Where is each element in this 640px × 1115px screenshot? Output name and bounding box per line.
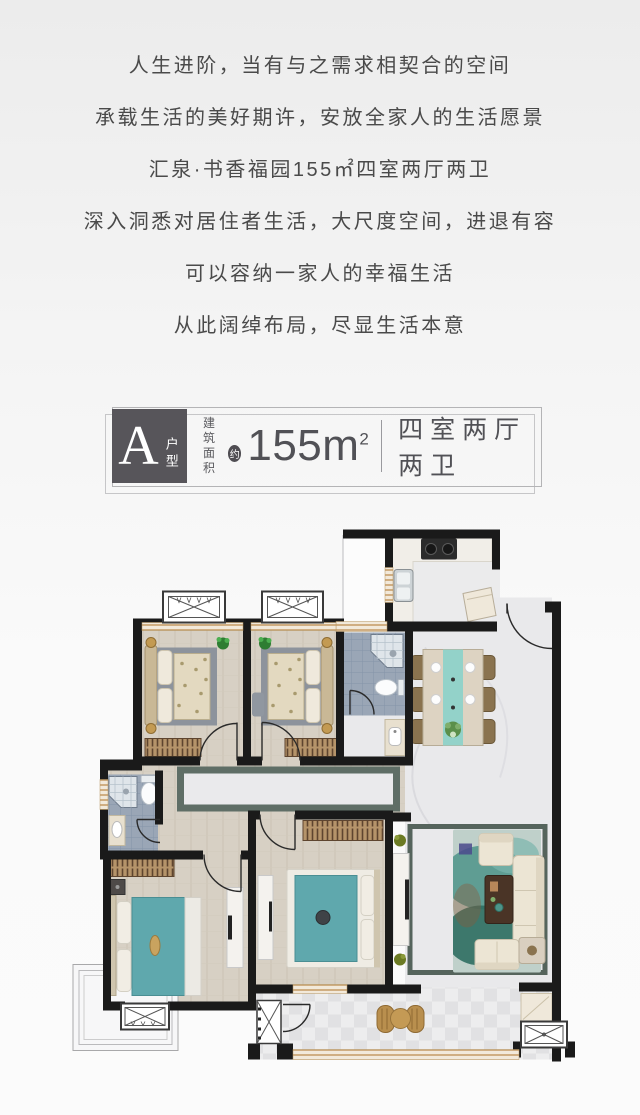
wall xyxy=(168,1002,248,1011)
pillow xyxy=(158,689,172,723)
entry-floor xyxy=(492,598,552,628)
wall xyxy=(385,813,411,822)
sink-basin xyxy=(397,573,410,585)
wall xyxy=(387,622,497,632)
wall xyxy=(133,619,142,766)
wall xyxy=(385,603,393,624)
area-label-bottom: 面积 xyxy=(203,446,223,476)
room-layout-text: 四室两厅两卫 xyxy=(398,410,547,482)
badge-divider xyxy=(381,420,382,472)
badge-content: 建筑 面积 约 155m2 四室两厅两卫 xyxy=(203,407,547,485)
wall xyxy=(385,536,393,568)
area-superscript: 2 xyxy=(359,429,369,448)
toilet xyxy=(375,680,397,696)
window-sill xyxy=(336,622,387,632)
plate xyxy=(465,695,475,705)
table-decor xyxy=(451,678,455,682)
loveseat-back xyxy=(475,963,519,970)
bedpost-finial xyxy=(146,638,156,648)
duvet xyxy=(174,654,210,720)
bath-window xyxy=(100,780,108,810)
unit-type-badge: A 户型 建筑 面积 约 155m2 四室两厅两卫 xyxy=(105,402,547,496)
fridge xyxy=(463,588,496,622)
wall xyxy=(347,985,393,994)
headline-line: 可以容纳一家人的幸福生活 xyxy=(0,248,640,300)
bed-pillow-gold xyxy=(150,936,160,956)
marketing-page: 人生进阶，当有与之需求相契合的空间 承载生活的美好期许，安放全家人的生活愿景 汇… xyxy=(0,0,640,1115)
shower-drain xyxy=(123,789,129,795)
burner xyxy=(426,544,437,555)
wall xyxy=(343,530,500,539)
hallway-runner xyxy=(184,774,393,805)
bed-throw xyxy=(185,898,201,996)
headboard xyxy=(321,646,333,726)
shower-drain xyxy=(390,650,397,657)
bay-window xyxy=(163,592,225,623)
side-table-decor xyxy=(527,946,537,956)
wall xyxy=(155,771,163,825)
bedpost-finial xyxy=(322,638,332,648)
headline-line: 深入洞悉对居住者生活，大尺度空间，进退有容 xyxy=(0,196,640,248)
faucet xyxy=(394,730,397,733)
area-value: 155m2 xyxy=(247,421,369,471)
window-sill xyxy=(251,623,336,631)
wardrobe xyxy=(303,821,383,841)
wall xyxy=(103,860,111,1011)
headline-line: 汇泉·书香福园155㎡四室两厅两卫 xyxy=(0,144,640,196)
nightstand-decor xyxy=(116,885,120,889)
duvet xyxy=(268,654,304,720)
round-table xyxy=(391,1009,411,1029)
tv xyxy=(405,880,409,920)
floor-plan xyxy=(55,505,590,1105)
bedpost-finial xyxy=(322,724,332,734)
wall xyxy=(100,851,203,860)
plate xyxy=(465,663,475,673)
area-label-top: 建筑 xyxy=(203,416,223,446)
wall xyxy=(243,623,251,762)
pillow xyxy=(361,920,374,960)
dining-set xyxy=(411,650,495,746)
bay-window xyxy=(262,592,323,623)
dresser xyxy=(145,739,201,757)
headline-block: 人生进阶，当有与之需求相契合的空间 承载生活的美好期许，安放全家人的生活愿景 汇… xyxy=(0,0,640,352)
plant xyxy=(394,835,406,847)
coffee-table-decor xyxy=(495,904,503,912)
plant xyxy=(394,954,406,966)
wall xyxy=(552,602,561,1062)
wall xyxy=(133,757,200,766)
armchair-back xyxy=(479,834,513,843)
kitchen-window xyxy=(385,568,393,603)
unit-letter: A xyxy=(118,421,158,471)
headline-line: 从此阔绰布局，尽显生活本意 xyxy=(0,300,640,352)
coffee-table xyxy=(485,876,513,924)
bed-pillow-dark xyxy=(316,911,330,925)
light-well xyxy=(343,536,389,625)
wall xyxy=(519,983,552,992)
table-decor xyxy=(451,706,455,710)
toilet-tank xyxy=(141,776,157,783)
wall xyxy=(492,536,500,570)
wall xyxy=(336,622,344,763)
pillow xyxy=(306,651,320,685)
wall xyxy=(248,1044,260,1060)
coffee-table-decor xyxy=(490,882,498,892)
pillow xyxy=(361,876,374,916)
wall xyxy=(300,757,344,766)
approx-mark: 约 xyxy=(228,445,241,462)
headboard xyxy=(374,870,380,968)
wall xyxy=(248,811,260,820)
wall xyxy=(241,851,248,860)
headboard xyxy=(145,646,157,726)
tv xyxy=(228,916,232,940)
wall xyxy=(336,757,413,766)
slider-window xyxy=(293,985,347,994)
balcony-right-window xyxy=(521,1022,567,1048)
table-plant xyxy=(445,722,461,738)
pillow xyxy=(117,902,131,944)
wall xyxy=(248,811,256,1011)
bedpost-finial xyxy=(146,724,156,734)
headline-line: 人生进阶，当有与之需求相契合的空间 xyxy=(0,40,640,92)
dresser xyxy=(285,739,337,757)
wall xyxy=(393,985,421,994)
burner xyxy=(443,544,454,555)
window-sill xyxy=(142,623,243,631)
wall xyxy=(295,811,393,820)
coffee-table-decor xyxy=(491,897,496,902)
plate xyxy=(431,663,441,673)
bedroom-chair xyxy=(252,693,264,717)
headline-line: 承载生活的美好期许，安放全家人的生活愿景 xyxy=(0,92,640,144)
toilet xyxy=(141,783,157,805)
area-label: 建筑 面积 xyxy=(203,416,223,476)
plate xyxy=(431,695,441,705)
unit-letter-box: A 户型 xyxy=(112,409,187,483)
tv xyxy=(269,902,272,932)
balcony-glazing xyxy=(293,1050,519,1060)
utility-shaft xyxy=(257,1001,281,1044)
wall xyxy=(248,985,293,994)
wall xyxy=(277,1044,293,1060)
toilet-tank xyxy=(398,680,404,696)
sink-basin xyxy=(397,588,410,600)
bedroom3-window xyxy=(121,1004,169,1030)
wall xyxy=(237,757,262,766)
wall xyxy=(100,760,142,771)
pillow xyxy=(117,950,131,992)
unit-letter-label: 户型 xyxy=(162,437,181,471)
wall xyxy=(405,628,413,761)
wall xyxy=(385,819,393,994)
area-number: 155m xyxy=(247,421,359,470)
pillow xyxy=(158,651,172,685)
wash-basin xyxy=(112,822,122,838)
pillow xyxy=(306,689,320,723)
